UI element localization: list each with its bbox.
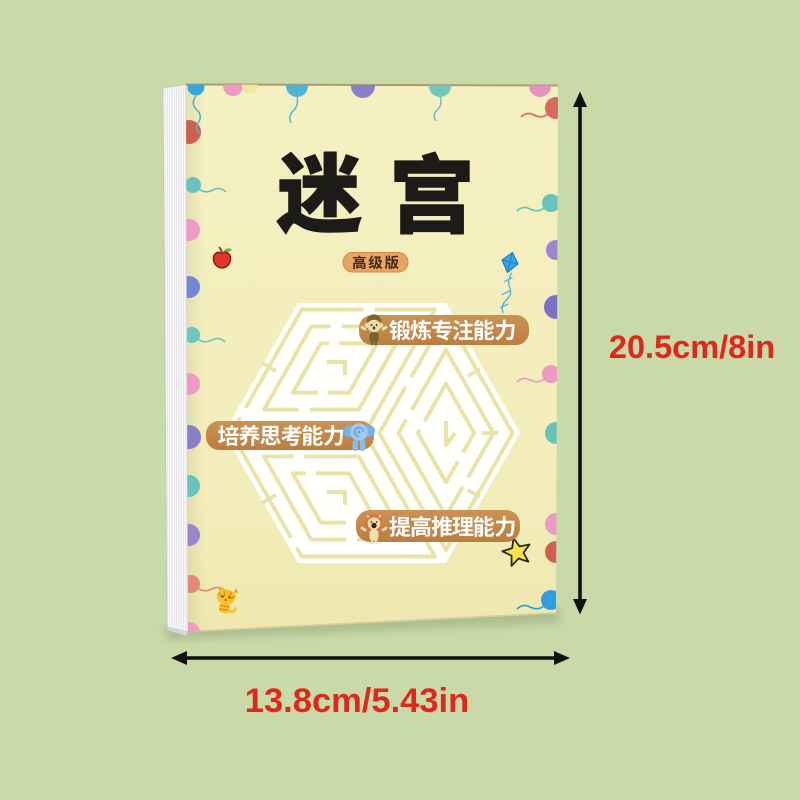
svg-text:20.5cm/8in: 20.5cm/8in — [609, 329, 775, 365]
svg-text:13.8cm/5.43in: 13.8cm/5.43in — [245, 682, 469, 720]
